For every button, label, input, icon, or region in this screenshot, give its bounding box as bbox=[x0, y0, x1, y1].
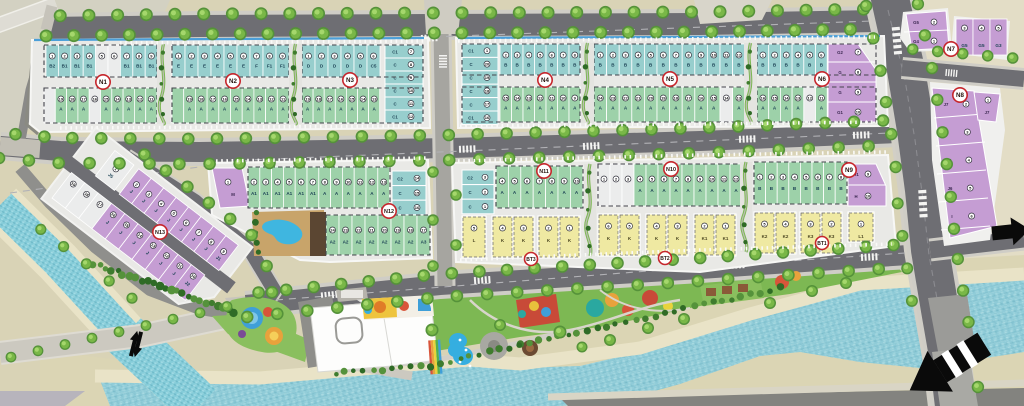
svg-text:15: 15 bbox=[772, 95, 777, 100]
svg-text:24: 24 bbox=[330, 227, 335, 232]
svg-text:14: 14 bbox=[361, 96, 366, 101]
svg-text:K3: K3 bbox=[808, 234, 814, 239]
svg-text:K2: K2 bbox=[783, 234, 789, 239]
svg-text:G4: G4 bbox=[913, 39, 919, 44]
svg-text:N8: N8 bbox=[956, 92, 964, 99]
svg-text:16: 16 bbox=[339, 96, 344, 101]
svg-text:15: 15 bbox=[504, 95, 509, 100]
svg-text:13: 13 bbox=[737, 95, 742, 100]
svg-text:23: 23 bbox=[343, 227, 348, 232]
svg-text:N3: N3 bbox=[346, 77, 354, 84]
svg-text:A1: A1 bbox=[298, 191, 304, 196]
svg-text:C: C bbox=[468, 205, 471, 210]
svg-text:10: 10 bbox=[574, 178, 579, 183]
svg-text:A2: A2 bbox=[343, 240, 349, 245]
svg-text:N1: N1 bbox=[99, 79, 107, 86]
svg-text:A2: A2 bbox=[356, 240, 362, 245]
svg-text:C1: C1 bbox=[468, 116, 474, 121]
svg-text:E: E bbox=[242, 64, 245, 69]
svg-text:G3: G3 bbox=[995, 43, 1002, 48]
svg-text:12: 12 bbox=[269, 96, 274, 101]
svg-text:12: 12 bbox=[138, 96, 143, 101]
svg-text:12: 12 bbox=[538, 95, 543, 100]
svg-text:E: E bbox=[216, 64, 219, 69]
svg-text:13: 13 bbox=[527, 95, 532, 100]
svg-text:E: E bbox=[229, 64, 232, 69]
svg-text:15: 15 bbox=[415, 190, 420, 195]
svg-text:F1: F1 bbox=[280, 64, 286, 69]
svg-text:19: 19 bbox=[485, 75, 490, 80]
svg-text:N13: N13 bbox=[155, 230, 165, 236]
svg-text:J7: J7 bbox=[985, 110, 990, 115]
svg-text:18: 18 bbox=[199, 96, 204, 101]
svg-text:M: M bbox=[231, 192, 235, 197]
svg-text:B1: B1 bbox=[86, 64, 92, 69]
svg-text:10: 10 bbox=[346, 179, 351, 184]
svg-text:23: 23 bbox=[611, 95, 616, 100]
svg-text:16: 16 bbox=[93, 96, 98, 101]
svg-text:N6: N6 bbox=[818, 76, 826, 83]
svg-text:C1: C1 bbox=[392, 115, 398, 120]
svg-text:B1: B1 bbox=[136, 64, 142, 69]
svg-text:K1: K1 bbox=[723, 236, 729, 241]
svg-text:12: 12 bbox=[807, 95, 812, 100]
svg-text:22: 22 bbox=[356, 227, 361, 232]
svg-text:C: C bbox=[393, 89, 396, 94]
svg-text:19: 19 bbox=[59, 96, 64, 101]
svg-text:14: 14 bbox=[246, 96, 251, 101]
svg-text:C: C bbox=[393, 102, 396, 107]
svg-text:J7: J7 bbox=[944, 102, 949, 107]
svg-text:16: 16 bbox=[222, 96, 227, 101]
svg-text:A1: A1 bbox=[275, 191, 281, 196]
svg-text:C1: C1 bbox=[392, 50, 398, 55]
svg-text:14: 14 bbox=[415, 176, 420, 181]
svg-text:10: 10 bbox=[856, 109, 861, 114]
svg-text:G2: G2 bbox=[837, 50, 843, 55]
svg-text:J6: J6 bbox=[948, 186, 953, 191]
svg-text:13: 13 bbox=[372, 96, 377, 101]
svg-text:L: L bbox=[473, 238, 476, 243]
svg-text:14: 14 bbox=[115, 96, 120, 101]
svg-text:17: 17 bbox=[81, 96, 86, 101]
svg-text:A2: A2 bbox=[369, 240, 375, 245]
svg-text:C: C bbox=[469, 89, 472, 94]
svg-text:B1: B1 bbox=[148, 64, 154, 69]
svg-text:13: 13 bbox=[257, 96, 262, 101]
svg-text:A2: A2 bbox=[408, 240, 414, 245]
svg-text:19: 19 bbox=[661, 95, 666, 100]
svg-text:C5: C5 bbox=[371, 64, 377, 69]
svg-text:C: C bbox=[468, 190, 471, 195]
svg-text:21: 21 bbox=[369, 227, 374, 232]
svg-text:12: 12 bbox=[734, 176, 739, 181]
svg-text:G5: G5 bbox=[978, 43, 985, 48]
svg-text:C1: C1 bbox=[468, 49, 474, 54]
svg-text:20: 20 bbox=[382, 227, 387, 232]
svg-text:17: 17 bbox=[485, 102, 490, 107]
svg-text:13: 13 bbox=[381, 179, 386, 184]
svg-text:K2: K2 bbox=[762, 234, 768, 239]
svg-text:L1: L1 bbox=[858, 234, 864, 239]
svg-text:B2: B2 bbox=[49, 64, 55, 69]
svg-text:10: 10 bbox=[866, 193, 871, 198]
svg-text:B1: B1 bbox=[74, 64, 80, 69]
svg-text:A1: A1 bbox=[251, 191, 257, 196]
svg-text:BT2: BT2 bbox=[660, 256, 670, 262]
svg-text:G5: G5 bbox=[961, 43, 968, 48]
svg-text:14: 14 bbox=[724, 95, 729, 100]
svg-text:A1: A1 bbox=[263, 191, 269, 196]
svg-text:18: 18 bbox=[316, 96, 321, 101]
svg-text:A3: A3 bbox=[421, 240, 427, 245]
svg-text:14: 14 bbox=[784, 95, 789, 100]
svg-text:A2: A2 bbox=[382, 240, 388, 245]
svg-text:20: 20 bbox=[485, 62, 490, 67]
svg-text:12: 12 bbox=[737, 52, 742, 57]
svg-text:18: 18 bbox=[485, 88, 490, 93]
svg-text:N10: N10 bbox=[666, 167, 676, 173]
svg-text:19: 19 bbox=[395, 227, 400, 232]
svg-text:BT3: BT3 bbox=[526, 257, 536, 263]
svg-text:F: F bbox=[255, 64, 258, 69]
svg-text:C: C bbox=[469, 62, 472, 67]
svg-text:18: 18 bbox=[70, 96, 75, 101]
svg-text:17: 17 bbox=[328, 96, 333, 101]
svg-text:24: 24 bbox=[598, 95, 603, 100]
svg-text:K1: K1 bbox=[702, 236, 708, 241]
svg-text:H: H bbox=[854, 194, 857, 199]
svg-text:21: 21 bbox=[636, 95, 641, 100]
svg-text:15: 15 bbox=[350, 96, 355, 101]
svg-text:19: 19 bbox=[305, 96, 310, 101]
svg-text:18: 18 bbox=[408, 227, 413, 232]
svg-text:20: 20 bbox=[648, 95, 653, 100]
svg-text:N4: N4 bbox=[541, 77, 549, 84]
svg-text:10: 10 bbox=[409, 88, 414, 93]
svg-text:C2: C2 bbox=[467, 175, 473, 180]
svg-text:A1: A1 bbox=[286, 191, 292, 196]
svg-text:G5: G5 bbox=[913, 20, 919, 25]
svg-text:14: 14 bbox=[515, 95, 520, 100]
svg-text:22: 22 bbox=[623, 95, 628, 100]
svg-text:12: 12 bbox=[370, 179, 375, 184]
svg-text:C: C bbox=[469, 102, 472, 107]
svg-text:N2: N2 bbox=[229, 78, 237, 85]
svg-text:C: C bbox=[469, 76, 472, 81]
svg-text:15: 15 bbox=[711, 95, 716, 100]
svg-text:N9: N9 bbox=[845, 167, 853, 174]
svg-text:E: E bbox=[177, 64, 180, 69]
svg-text:15: 15 bbox=[234, 96, 239, 101]
svg-text:16: 16 bbox=[485, 115, 490, 120]
svg-text:10: 10 bbox=[711, 52, 716, 57]
svg-text:17: 17 bbox=[686, 95, 691, 100]
svg-text:B1: B1 bbox=[62, 64, 68, 69]
svg-text:19: 19 bbox=[187, 96, 192, 101]
svg-text:C2: C2 bbox=[397, 176, 403, 181]
svg-text:A2: A2 bbox=[395, 240, 401, 245]
svg-text:F1: F1 bbox=[267, 64, 273, 69]
svg-text:E: E bbox=[203, 64, 206, 69]
svg-text:G1: G1 bbox=[837, 110, 843, 115]
svg-text:N7: N7 bbox=[947, 46, 955, 53]
svg-text:C: C bbox=[398, 191, 401, 196]
svg-text:17: 17 bbox=[421, 227, 426, 232]
svg-text:10: 10 bbox=[561, 95, 566, 100]
svg-text:17: 17 bbox=[211, 96, 216, 101]
svg-text:13: 13 bbox=[796, 95, 801, 100]
svg-text:A1: A1 bbox=[310, 191, 316, 196]
svg-text:13: 13 bbox=[126, 96, 131, 101]
svg-text:16: 16 bbox=[415, 205, 420, 210]
svg-text:16: 16 bbox=[761, 95, 766, 100]
svg-text:15: 15 bbox=[104, 96, 109, 101]
svg-text:K3: K3 bbox=[829, 234, 835, 239]
svg-text:A2: A2 bbox=[330, 240, 336, 245]
svg-text:I: I bbox=[951, 214, 952, 219]
svg-text:N11: N11 bbox=[539, 169, 549, 175]
svg-text:10: 10 bbox=[710, 176, 715, 181]
svg-text:BT1: BT1 bbox=[817, 241, 827, 247]
svg-text:N12: N12 bbox=[384, 209, 394, 215]
svg-text:E: E bbox=[190, 64, 193, 69]
svg-text:18: 18 bbox=[674, 95, 679, 100]
svg-text:C: C bbox=[393, 63, 396, 68]
svg-text:16: 16 bbox=[699, 95, 704, 100]
svg-text:C: C bbox=[398, 206, 401, 211]
svg-text:B1: B1 bbox=[124, 64, 130, 69]
svg-text:12: 12 bbox=[409, 114, 414, 119]
svg-text:C: C bbox=[393, 76, 396, 81]
svg-text:N5: N5 bbox=[666, 76, 674, 83]
